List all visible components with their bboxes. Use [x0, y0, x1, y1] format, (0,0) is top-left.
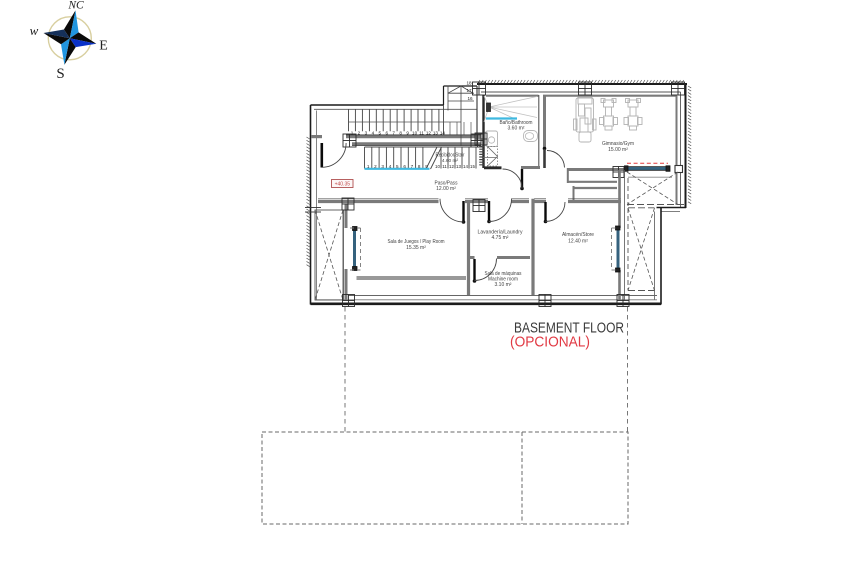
svg-text:2: 2: [374, 164, 377, 169]
svg-text:3: 3: [381, 164, 384, 169]
svg-text:8: 8: [418, 164, 421, 169]
svg-text:3.60 m²: 3.60 m²: [508, 126, 525, 132]
svg-text:7: 7: [411, 164, 414, 169]
svg-text:S: S: [56, 66, 64, 82]
svg-text:1: 1: [367, 164, 370, 169]
svg-text:+40.35: +40.35: [335, 182, 351, 188]
svg-text:10: 10: [435, 164, 440, 169]
svg-text:E: E: [99, 39, 108, 54]
svg-text:15: 15: [470, 164, 475, 169]
svg-text:15.00 m²: 15.00 m²: [608, 147, 628, 153]
svg-text:4.75 m²: 4.75 m²: [492, 235, 509, 241]
svg-text:w: w: [30, 23, 39, 38]
svg-text:12.00 m²: 12.00 m²: [436, 186, 456, 192]
svg-text:4: 4: [389, 164, 392, 169]
svg-text:17: 17: [466, 88, 472, 93]
svg-text:12.40 m²: 12.40 m²: [568, 239, 588, 245]
svg-text:4.60 m²: 4.60 m²: [442, 158, 459, 164]
svg-text:12: 12: [449, 164, 454, 169]
svg-text:9: 9: [425, 164, 428, 169]
svg-text:11: 11: [442, 164, 447, 169]
svg-text:(OPCIONAL): (OPCIONAL): [510, 335, 590, 351]
svg-text:13: 13: [456, 164, 461, 169]
svg-text:3.10 m²: 3.10 m²: [495, 282, 512, 288]
svg-text:14: 14: [463, 164, 468, 169]
svg-text:6: 6: [403, 164, 406, 169]
svg-text:Almacén/Store: Almacén/Store: [562, 232, 594, 238]
svg-text:Recibidor/Stair: Recibidor/Stair: [436, 153, 465, 159]
svg-text:15.35 m²: 15.35 m²: [406, 245, 426, 251]
svg-text:5: 5: [396, 164, 399, 169]
svg-text:NC: NC: [67, 0, 84, 12]
svg-text:16: 16: [467, 96, 473, 101]
svg-text:18: 18: [466, 81, 472, 86]
